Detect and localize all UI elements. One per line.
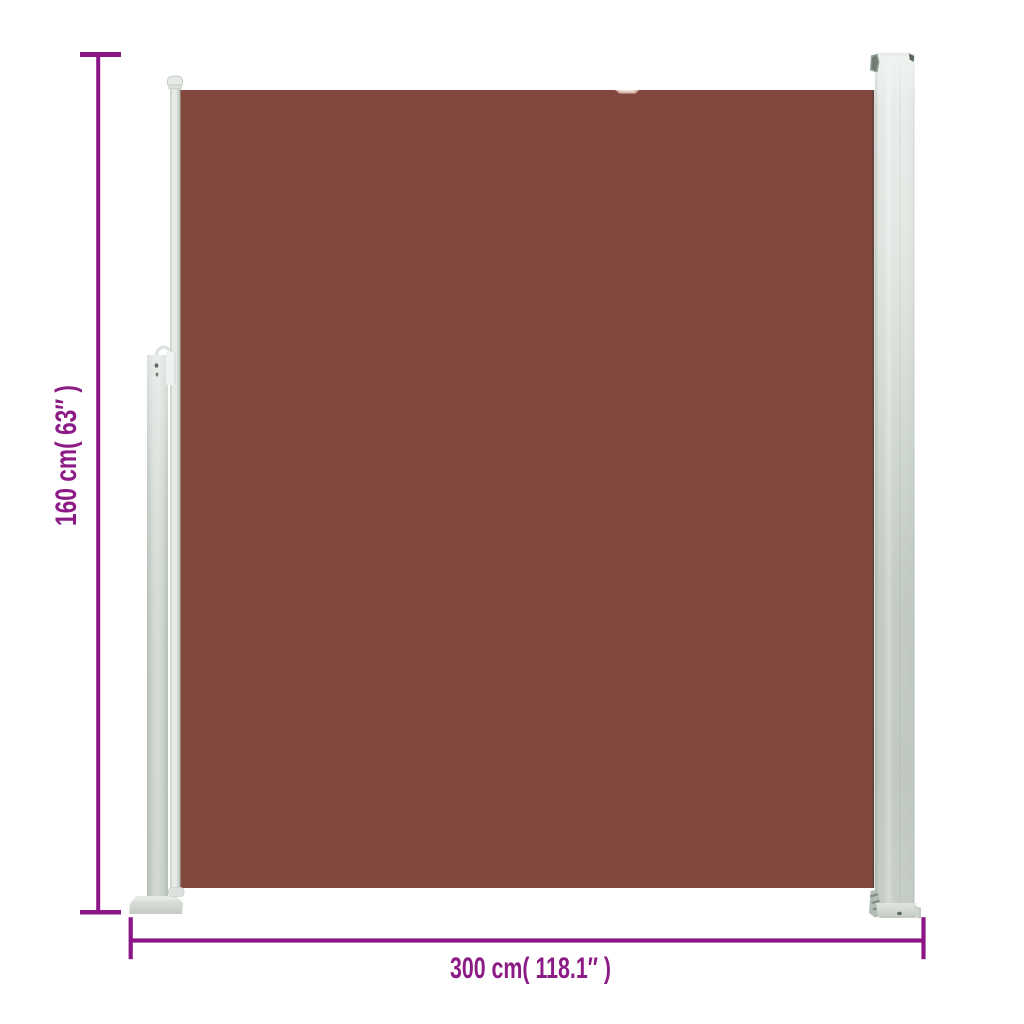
svg-text:300 cm( 118.1″ ): 300 cm( 118.1″ ) [450,952,611,985]
svg-text:160 cm( 63″ ): 160 cm( 63″ ) [50,385,83,526]
